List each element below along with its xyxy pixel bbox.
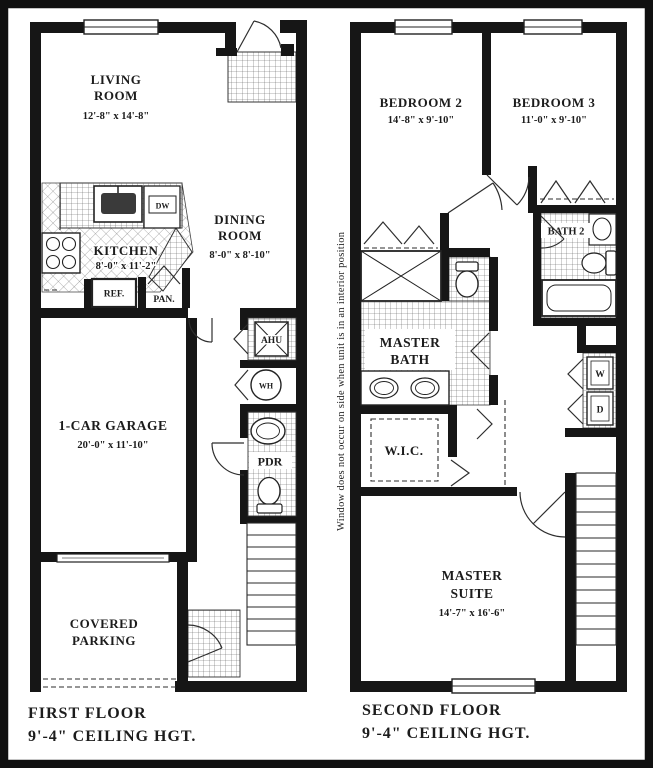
pantry-label: PAN. <box>153 295 174 305</box>
powder-room-toilet <box>257 478 282 514</box>
powder-room-label: PDR <box>258 455 283 469</box>
floor2-title: SECOND FLOOR 9'-4" CEILING HGT. <box>362 702 530 742</box>
floor1-title: FIRST FLOOR 9'-4" CEILING HGT. <box>28 705 196 745</box>
master-vanity-double-sink <box>361 371 449 405</box>
first-floor-title: FIRST FLOOR <box>28 705 147 722</box>
covered-parking-label-1: COVERED <box>70 616 139 631</box>
window-position-note: Window does not occur on side when unit … <box>336 231 347 531</box>
bedroom3-window <box>524 20 582 34</box>
ahu-label: AHU <box>261 336 282 346</box>
dining-room-label-1: DINING <box>214 212 265 227</box>
washer-label: W <box>595 370 605 380</box>
wic-door-icon <box>451 460 469 486</box>
linen-storage-xbox <box>361 251 441 301</box>
master-bath-label-2: BATH <box>390 352 429 367</box>
dining-room-dims: 8'-0" x 8'-10" <box>209 250 270 261</box>
refrigerator-label: REF. <box>104 290 125 300</box>
bedroom3-dims: 11'-0" x 9'-10" <box>521 115 587 126</box>
master-suite-label-2: SUITE <box>450 586 493 601</box>
master-toilet <box>456 262 478 297</box>
floor2-stairs <box>576 473 616 645</box>
water-heater-label: WH <box>259 382 274 391</box>
living-room-dims: 12'-8" x 14'-8" <box>83 111 150 122</box>
hall-door-icon <box>477 409 492 439</box>
bath2-tub <box>542 280 616 316</box>
first-floor-ceiling: 9'-4" CEILING HGT. <box>28 728 196 745</box>
living-room-label-1: LIVING <box>91 72 142 87</box>
dryer-bifold-icon <box>568 394 583 424</box>
kitchen-sink <box>94 186 142 222</box>
floor1-utility-closets: AHU WH PDR <box>212 318 296 516</box>
bedroom2-label: BEDROOM 2 <box>380 95 463 110</box>
dryer: D <box>587 392 613 425</box>
bedroom2-closet-bifold-icon <box>364 222 402 244</box>
wic-label: W.I.C. <box>384 443 423 458</box>
bedroom3-door <box>487 175 529 205</box>
dishwasher: DW <box>144 186 180 228</box>
living-room-window <box>84 20 158 34</box>
bedroom2-closet-bifold-icon-2 <box>404 226 434 244</box>
master-suite-dims: 14'-7" x 16'-6" <box>439 608 506 619</box>
bedroom3-label: BEDROOM 3 <box>513 95 596 110</box>
covered-parking-open-edge <box>43 679 177 687</box>
bath2-toilet <box>582 251 616 275</box>
living-room-label-2: ROOM <box>94 88 138 103</box>
bedroom2-window <box>395 20 452 34</box>
bath2-sink <box>589 214 616 245</box>
bedroom2-closet <box>361 222 441 301</box>
kitchen-label: KITCHEN <box>94 243 159 258</box>
bedroom2-dims: 14'-8" x 9'-10" <box>388 115 455 126</box>
covered-parking-label-2: PARKING <box>72 633 136 648</box>
stove-cooktop <box>42 233 80 273</box>
master-suite-label-1: MASTER <box>442 568 503 583</box>
dining-room-label-2: ROOM <box>218 228 262 243</box>
bedroom2-door <box>448 183 502 213</box>
second-floor-ceiling: 9'-4" CEILING HGT. <box>362 725 530 742</box>
first-floor-plan: DW REF. PAN. <box>28 20 307 745</box>
garage-label: 1-CAR GARAGE <box>58 418 167 433</box>
front-entry-door <box>237 21 281 52</box>
dishwasher-label: DW <box>156 202 170 211</box>
entry-foyer-tile <box>228 52 296 102</box>
water-heater-closet: WH <box>235 370 281 400</box>
floor-plan-drawing: DW REF. PAN. <box>0 0 653 768</box>
kitchen-dims: 8'-0" x 11'-2" <box>96 261 157 272</box>
dryer-label: D <box>597 406 604 416</box>
master-bath-label-1: MASTER <box>380 335 441 350</box>
washer-bifold-icon <box>568 359 583 389</box>
washer: W <box>587 357 613 389</box>
bedroom3-closet <box>540 181 614 203</box>
master-suite-door <box>520 492 565 537</box>
second-floor-plan: Window does not occur on side when unit … <box>336 20 627 742</box>
water-heater-bifold-door-icon <box>235 370 248 400</box>
garage-door-panel <box>57 554 169 562</box>
rear-landing-tile <box>188 610 240 677</box>
master-suite-window <box>452 679 535 693</box>
second-floor-title: SECOND FLOOR <box>362 702 502 719</box>
bedroom3-closet-bifold-icon <box>541 181 571 203</box>
powder-room: PDR <box>212 412 296 516</box>
powder-room-door <box>212 443 244 475</box>
floor-plan-sheet: DW REF. PAN. <box>0 0 653 768</box>
garage-dims: 20'-0" x 11'-10" <box>77 440 148 451</box>
bedroom3-closet-bifold-icon-2 <box>575 181 605 203</box>
refrigerator: REF. <box>92 279 136 307</box>
